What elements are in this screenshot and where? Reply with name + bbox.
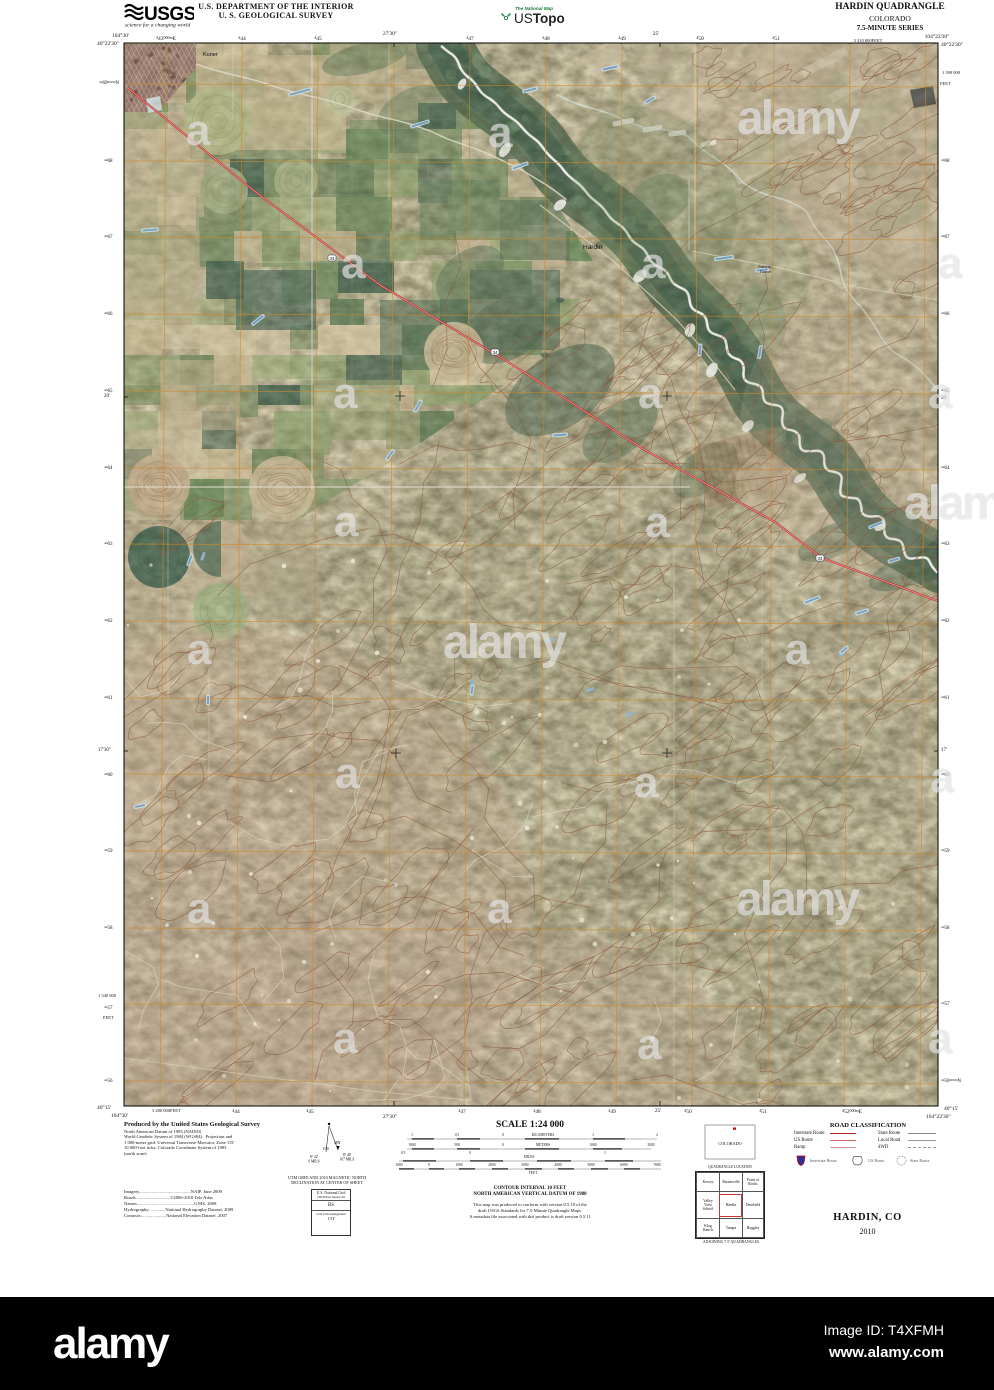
svg-text:0: 0: [469, 1151, 471, 1155]
svg-text:34: 34: [329, 256, 335, 261]
svg-text:2: 2: [656, 1133, 658, 1137]
svg-text:1000: 1000: [395, 1163, 402, 1167]
svg-text:0: 0: [428, 1163, 430, 1167]
svg-text:0.5: 0.5: [455, 1133, 460, 1137]
svg-text:34: 34: [492, 350, 498, 355]
svg-text:5000: 5000: [587, 1163, 594, 1167]
svg-text:0.5: 0.5: [401, 1151, 406, 1155]
svg-text:7000: 7000: [653, 1163, 660, 1167]
svg-text:2000: 2000: [647, 1143, 654, 1147]
svg-text:6 MILS: 6 MILS: [308, 1160, 319, 1164]
svg-text:KILOMETERS: KILOMETERS: [532, 1133, 555, 1137]
svg-text:34: 34: [817, 556, 823, 561]
svg-text:8° 46': 8° 46': [343, 1153, 352, 1157]
svg-text:METERS: METERS: [536, 1143, 550, 1147]
svg-text:0: 0: [502, 1133, 504, 1137]
svg-text:Hardin: Hardin: [583, 244, 603, 251]
svg-text:COLORADO: COLORADO: [718, 1141, 741, 1146]
svg-text:Kuner: Kuner: [203, 52, 218, 58]
svg-text:1000: 1000: [408, 1143, 415, 1147]
svg-text:MN: MN: [334, 1140, 341, 1145]
svg-text:0° 22': 0° 22': [310, 1155, 319, 1159]
svg-text:1000: 1000: [455, 1163, 462, 1167]
svg-text:FEET: FEET: [529, 1171, 538, 1175]
svg-text:MILES: MILES: [524, 1155, 535, 1159]
svg-text:0: 0: [502, 1143, 504, 1147]
svg-text:1: 1: [411, 1133, 413, 1137]
svg-text:2000: 2000: [488, 1163, 495, 1167]
svg-text:6000: 6000: [620, 1163, 627, 1167]
svg-text:1: 1: [604, 1151, 606, 1155]
svg-text:500: 500: [454, 1143, 460, 1147]
svg-text:167 MILS: 167 MILS: [340, 1158, 355, 1162]
svg-text:Ranch: Ranch: [760, 269, 772, 274]
svg-text:3000: 3000: [521, 1163, 528, 1167]
svg-text:GN: GN: [323, 1146, 329, 1151]
svg-text:1: 1: [592, 1133, 594, 1137]
svg-text:1000: 1000: [589, 1143, 596, 1147]
svg-text:4000: 4000: [554, 1163, 561, 1167]
